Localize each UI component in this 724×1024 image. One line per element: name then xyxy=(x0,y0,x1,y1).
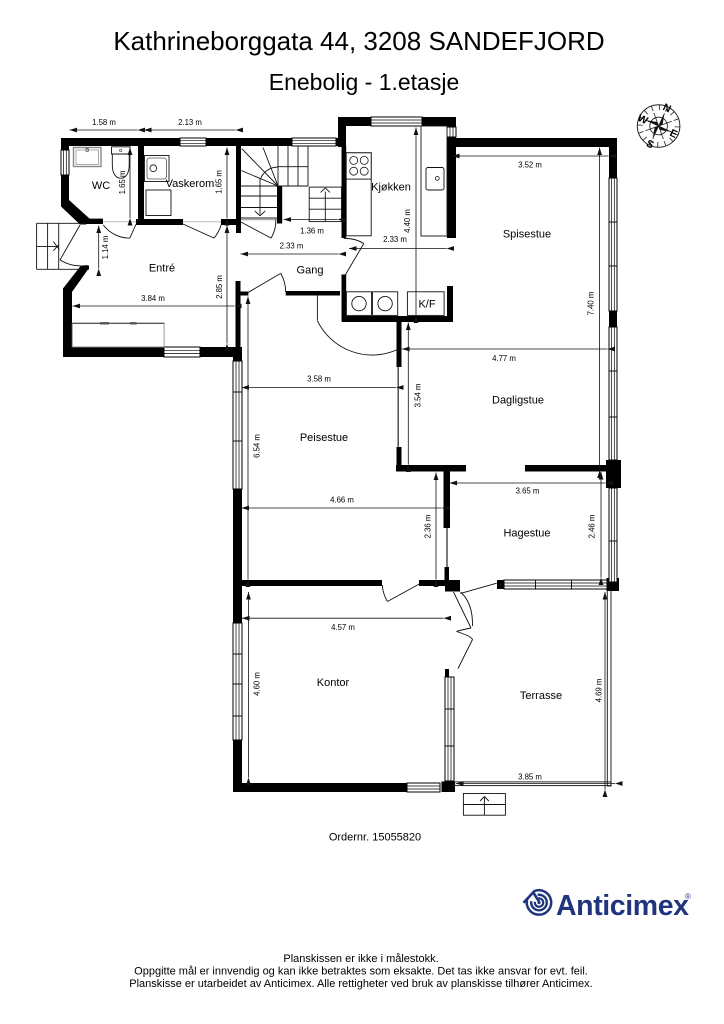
svg-text:4.66 m: 4.66 m xyxy=(330,496,354,505)
svg-text:7.40 m: 7.40 m xyxy=(587,292,596,316)
svg-text:Planskisse er utarbeidet av An: Planskisse er utarbeidet av Anticimex. A… xyxy=(129,978,592,990)
svg-text:Kjøkken: Kjøkken xyxy=(371,182,411,194)
svg-text:1.14 m: 1.14 m xyxy=(101,236,110,260)
svg-text:1.58 m: 1.58 m xyxy=(92,118,116,127)
svg-text:3.54 m: 3.54 m xyxy=(414,384,423,408)
svg-text:2.33 m: 2.33 m xyxy=(383,235,407,244)
svg-text:Gang: Gang xyxy=(297,265,324,277)
svg-text:Planskissen er ikke i målestok: Planskissen er ikke i målestokk. xyxy=(283,953,438,965)
svg-text:3.58 m: 3.58 m xyxy=(307,375,331,384)
svg-text:Kathrineborggata 44, 3208 SAND: Kathrineborggata 44, 3208 SANDEFJORD xyxy=(113,26,604,56)
svg-text:Kontor: Kontor xyxy=(317,677,350,689)
svg-text:4.40 m: 4.40 m xyxy=(403,209,412,233)
svg-text:4.57 m: 4.57 m xyxy=(331,623,355,632)
svg-text:Hagestue: Hagestue xyxy=(503,528,550,540)
svg-text:2.46 m: 2.46 m xyxy=(588,515,597,539)
svg-text:1.65 m: 1.65 m xyxy=(118,171,127,195)
svg-text:Ordernr. 15055820: Ordernr. 15055820 xyxy=(329,832,421,844)
svg-text:Anticimex: Anticimex xyxy=(556,890,689,922)
svg-text:Terrasse: Terrasse xyxy=(520,690,562,702)
svg-text:Entré: Entré xyxy=(149,263,175,275)
svg-text:3.52 m: 3.52 m xyxy=(518,161,542,170)
svg-text:Spisestue: Spisestue xyxy=(503,229,551,241)
svg-text:K/F: K/F xyxy=(418,299,435,311)
svg-text:4.77 m: 4.77 m xyxy=(492,354,516,363)
svg-text:4.60 m: 4.60 m xyxy=(253,672,262,696)
svg-text:Vaskerom: Vaskerom xyxy=(166,178,215,190)
svg-text:1.65 m: 1.65 m xyxy=(215,170,224,194)
svg-text:2.36 m: 2.36 m xyxy=(424,515,433,539)
svg-text:WC: WC xyxy=(92,180,110,192)
svg-text:Dagligstue: Dagligstue xyxy=(492,395,544,407)
svg-text:2.85 m: 2.85 m xyxy=(215,275,224,299)
svg-text:Peisestue: Peisestue xyxy=(300,432,348,444)
svg-text:1.36 m: 1.36 m xyxy=(300,227,324,236)
svg-text:3.65 m: 3.65 m xyxy=(516,487,540,496)
svg-text:Enebolig - 1.etasje: Enebolig - 1.etasje xyxy=(269,69,460,95)
svg-text:3.85 m: 3.85 m xyxy=(518,773,542,782)
svg-text:3.84 m: 3.84 m xyxy=(141,294,165,303)
svg-text:Oppgitte mål er innvendig og k: Oppgitte mål er innvendig og kan ikke be… xyxy=(134,966,588,978)
svg-text:6.54 m: 6.54 m xyxy=(253,434,262,458)
svg-text:2.33 m: 2.33 m xyxy=(280,242,304,251)
svg-text:4.69 m: 4.69 m xyxy=(595,679,604,703)
svg-text:2.13 m: 2.13 m xyxy=(178,118,202,127)
svg-text:®: ® xyxy=(685,892,691,901)
